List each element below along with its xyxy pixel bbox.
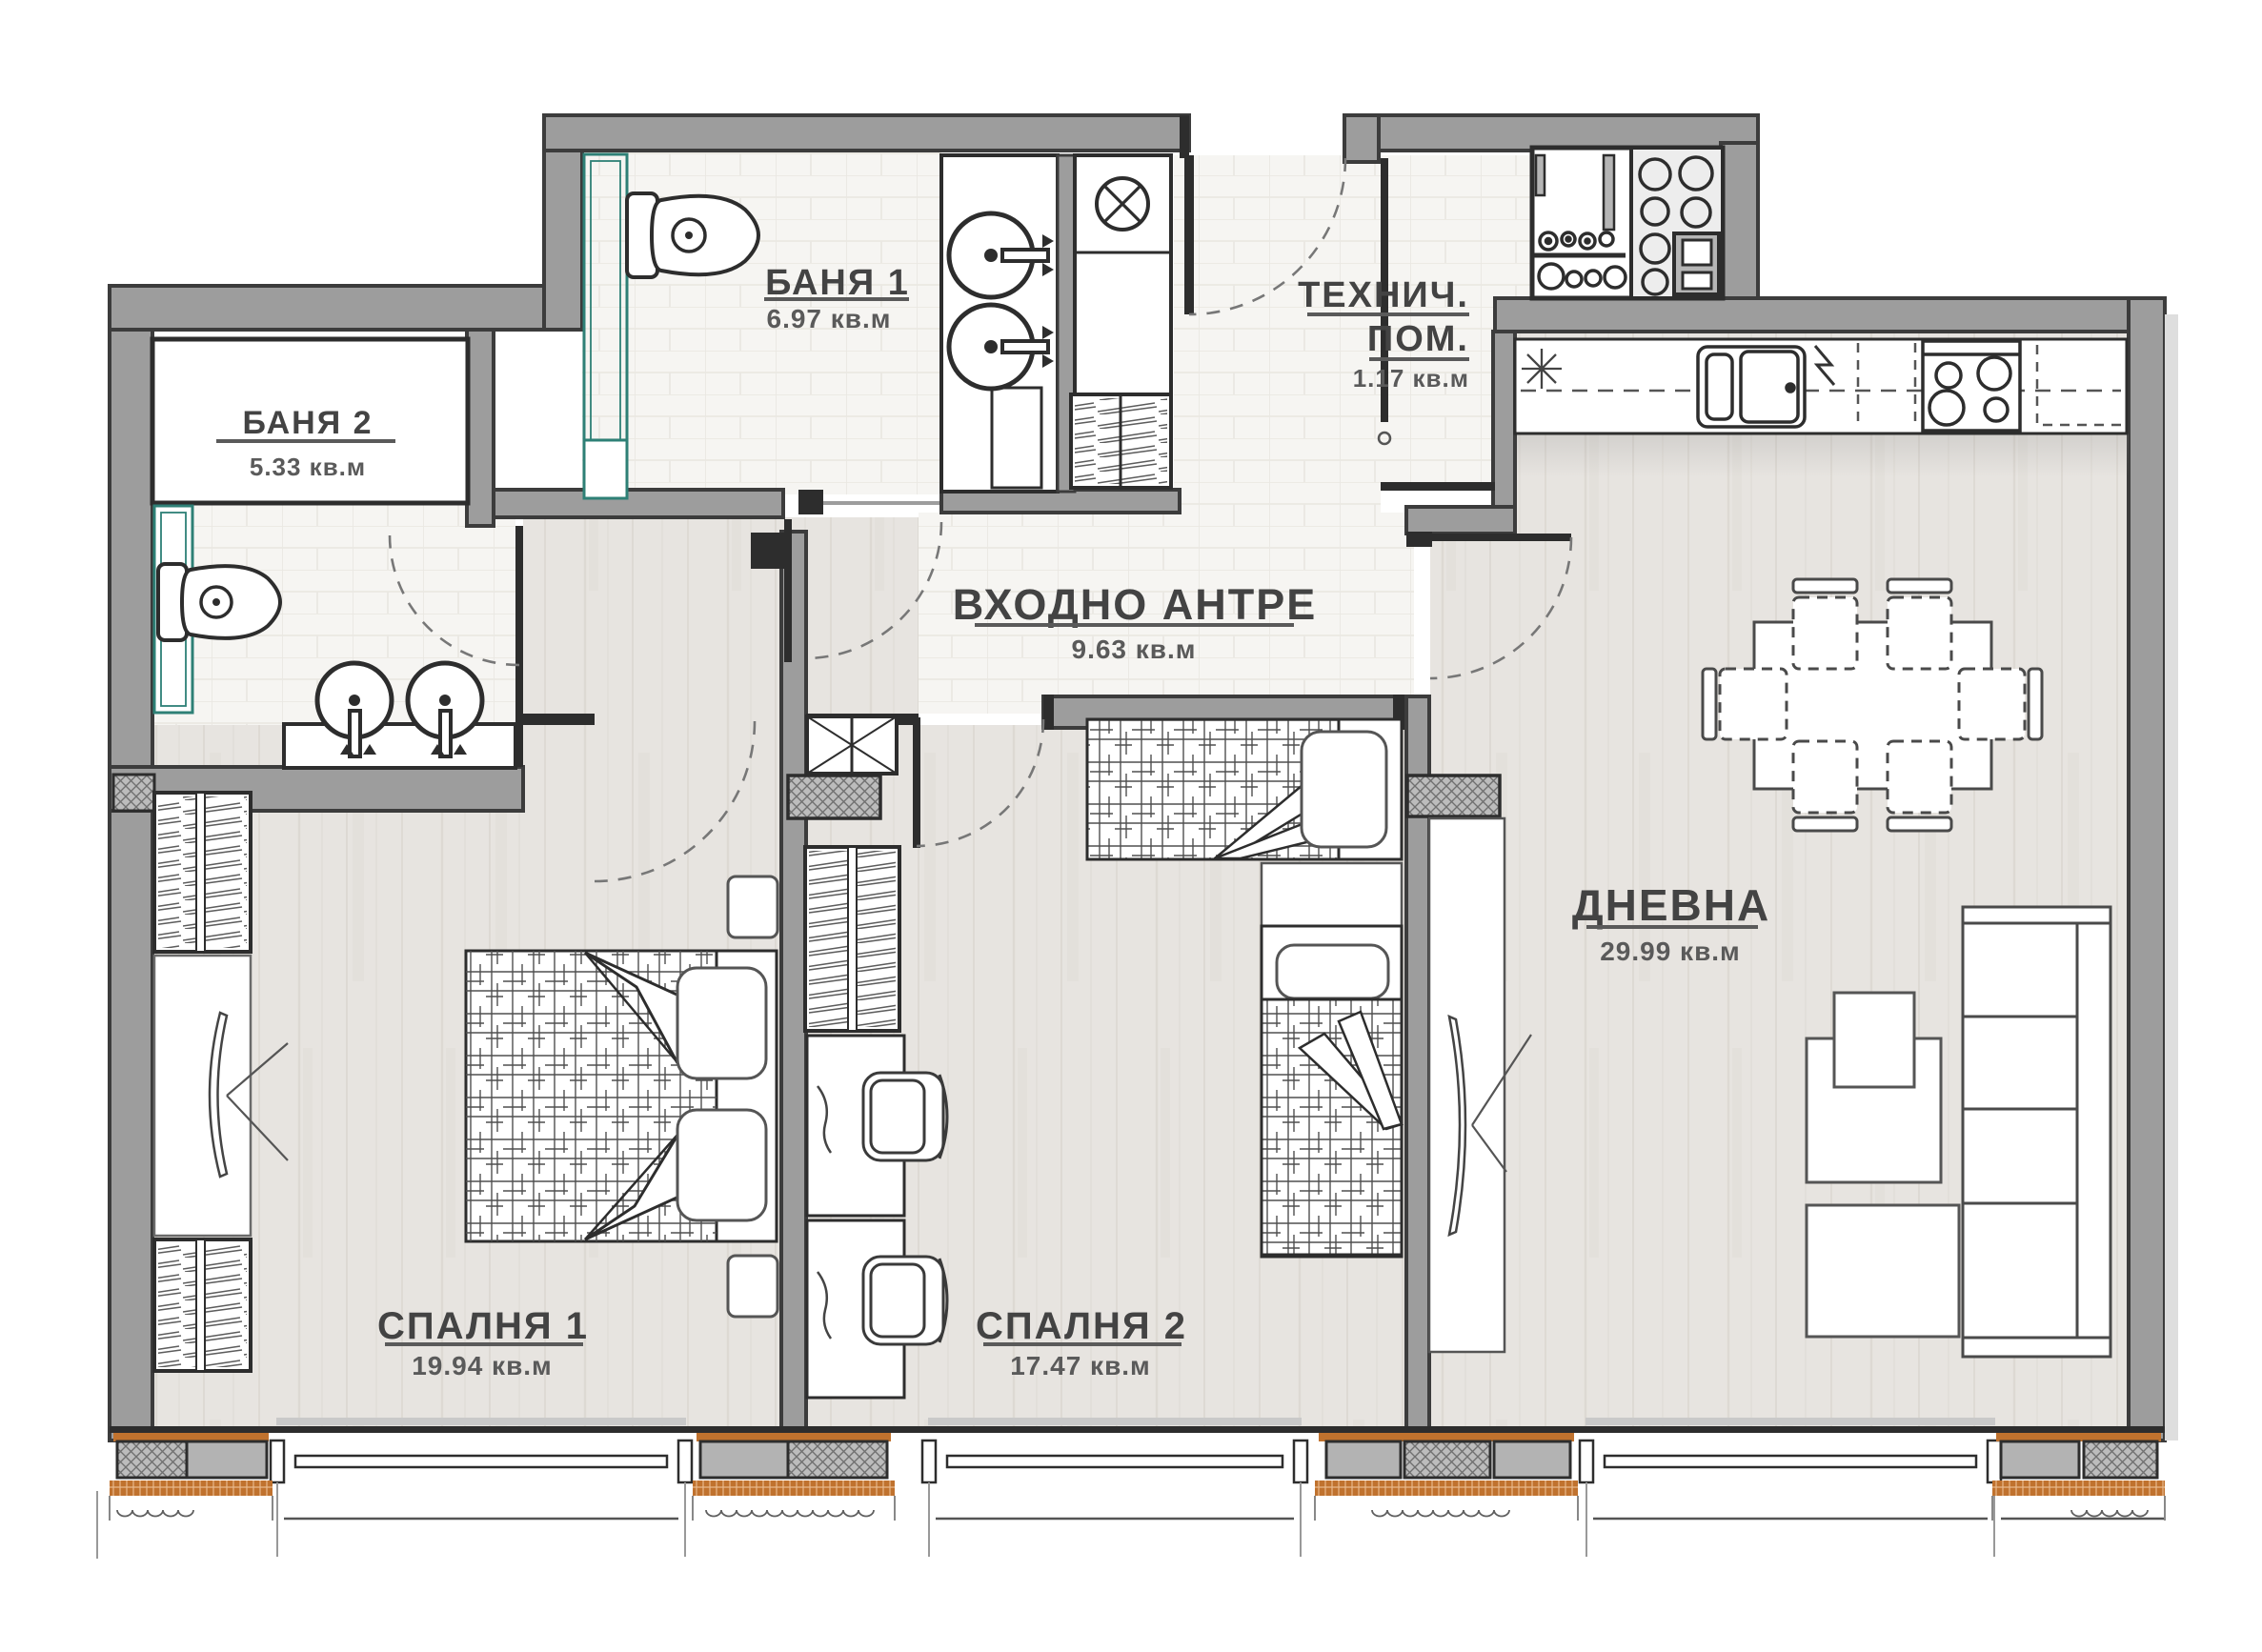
svg-text:9.63 кв.м: 9.63 кв.м [1072,635,1197,664]
svg-text:СПАЛНЯ 2: СПАЛНЯ 2 [976,1305,1187,1347]
svg-text:1.17 кв.м: 1.17 кв.м [1353,364,1469,393]
svg-text:ДНЕВНА: ДНЕВНА [1572,880,1770,930]
svg-text:ТЕХНИЧ.: ТЕХНИЧ. [1298,275,1469,315]
svg-text:6.97 кв.м: 6.97 кв.м [767,304,892,333]
svg-text:БАНЯ 1: БАНЯ 1 [765,263,910,303]
svg-text:ВХОДНО АНТРЕ: ВХОДНО АНТРЕ [953,580,1318,629]
svg-text:5.33 кв.м: 5.33 кв.м [250,453,366,481]
svg-text:29.99 кв.м: 29.99 кв.м [1600,937,1741,966]
svg-text:19.94 кв.м: 19.94 кв.м [412,1351,553,1380]
svg-text:ПОМ.: ПОМ. [1367,319,1469,359]
svg-text:СПАЛНЯ 1: СПАЛНЯ 1 [377,1305,589,1347]
svg-text:БАНЯ 2: БАНЯ 2 [242,405,373,441]
svg-text:17.47 кв.м: 17.47 кв.м [1010,1351,1151,1380]
